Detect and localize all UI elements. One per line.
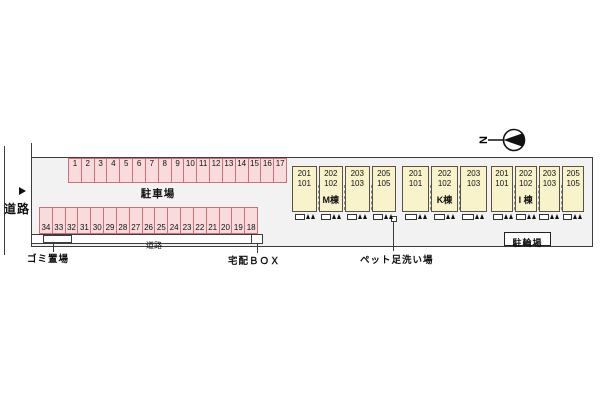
parking-row-bottom: 3433323130292827262524232221201918	[39, 207, 258, 234]
porch-rect	[434, 214, 446, 220]
unit-partition-dashed-line	[371, 185, 372, 210]
unit-numbers: 201101	[492, 169, 512, 188]
entrance-cell	[561, 213, 584, 220]
unit-numbers: 202102	[320, 169, 343, 188]
entrance-step-triangle-icon	[363, 214, 367, 219]
right-arrow-icon	[19, 187, 26, 195]
unit-202: 202102I 棟	[515, 166, 537, 212]
parking-row-top: 1234567891011121314151617	[68, 158, 287, 183]
parking-stall-number: 18	[243, 223, 259, 232]
entrance-step-triangle-icon	[573, 214, 577, 219]
entrance-step-triangle-icon	[578, 214, 582, 219]
entrance-cell	[344, 213, 370, 220]
site-plan-canvas: 道路 1234567891011121314151617 駐車場 3433323…	[0, 0, 600, 400]
porch-rect	[295, 214, 306, 220]
porch-rect	[373, 214, 384, 220]
unit-partition-dashed-line	[459, 185, 460, 210]
entrance-step-triangle-icon	[332, 214, 336, 219]
entrance-step-triangle-icon	[451, 214, 455, 219]
unit-205: 205105	[372, 166, 397, 212]
garbage-area-label: ゴミ置場	[27, 251, 69, 265]
entrance-step-triangle-icon	[475, 214, 479, 219]
building-entrance-strip	[491, 213, 584, 220]
porch-rect	[462, 214, 474, 220]
unit-partition-dashed-line	[514, 185, 515, 210]
porch-rect	[347, 214, 358, 220]
porch-rect	[405, 214, 417, 220]
entrance-step-triangle-icon	[306, 214, 310, 219]
unit-numbers: 203103	[346, 169, 369, 188]
entrance-step-triangle-icon	[311, 214, 315, 219]
entrance-cell	[538, 213, 561, 220]
entrance-step-triangle-icon	[555, 214, 559, 219]
unit-203: 203103	[539, 166, 561, 212]
bicycle-parking-label: 駐輪場	[512, 238, 542, 248]
entrance-cell	[402, 213, 430, 220]
building-K棟: 201101202102K棟203103	[402, 166, 487, 212]
entrance-step-triangle-icon	[480, 214, 484, 219]
boundary-extension-line	[31, 143, 32, 157]
unit-numbers: 203103	[540, 169, 560, 188]
unit-numbers: 202102	[516, 169, 536, 188]
unit-partition-dashed-line	[318, 185, 319, 210]
building-entrance-strip	[402, 213, 487, 220]
entrance-step-triangle-icon	[527, 214, 531, 219]
porch-rect	[321, 214, 332, 220]
unit-numbers: 203103	[461, 169, 486, 188]
parking-lot-label: 駐車場	[118, 186, 198, 201]
entrance-step-triangle-icon	[337, 214, 341, 219]
unit-numbers: 201101	[293, 169, 316, 188]
pet-wash-label: ペット足洗い場	[360, 252, 434, 266]
building-M棟: 201101202102M棟203103205105	[292, 166, 396, 212]
porch-rect	[516, 214, 526, 220]
parking-stall-18: 18	[244, 207, 258, 234]
unit-203: 203103	[460, 166, 487, 212]
parking-stall-17: 17	[273, 158, 287, 183]
unit-partition-dashed-line	[344, 185, 345, 210]
delivery-leader-line	[257, 244, 258, 253]
north-letter: N	[478, 136, 490, 144]
entrance-cell	[491, 213, 514, 220]
parking-stall-number: 17	[272, 159, 288, 168]
garbage-area-box	[43, 235, 72, 243]
unit-numbers: 205105	[373, 169, 396, 188]
entrance-cell	[514, 213, 537, 220]
unit-partition-dashed-line	[430, 185, 431, 210]
entrance-step-triangle-icon	[384, 214, 388, 219]
entrance-step-triangle-icon	[550, 214, 554, 219]
porch-rect	[563, 214, 573, 220]
entrance-step-triangle-icon	[532, 214, 536, 219]
unit-202: 202102M棟	[319, 166, 344, 212]
entrance-cell	[292, 213, 318, 220]
porch-rect	[493, 214, 503, 220]
north-compass-icon: N	[476, 122, 536, 158]
entrance-step-triangle-icon	[504, 214, 508, 219]
unit-partition-dashed-line	[538, 185, 539, 210]
unit-numbers: 205105	[563, 169, 583, 188]
delivery-box-label: 宅配ＢＯＸ	[228, 253, 281, 267]
entrance-step-triangle-icon	[389, 214, 393, 219]
unit-205: 205105	[562, 166, 584, 212]
delivery-box	[251, 234, 263, 244]
entrance-cell	[459, 213, 487, 220]
entrance-step-triangle-icon	[509, 214, 513, 219]
unit-202: 202102K棟	[431, 166, 458, 212]
bicycle-parking-box: 駐輪場	[504, 232, 551, 246]
unit-203: 203103	[345, 166, 370, 212]
entrance-step-triangle-icon	[358, 214, 362, 219]
building-entrance-strip	[292, 213, 396, 220]
entrance-step-triangle-icon	[418, 214, 422, 219]
entrance-step-triangle-icon	[423, 214, 427, 219]
building-I棟: 201101202102I 棟203103205105	[491, 166, 584, 212]
inner-road-label: 道路	[132, 242, 162, 250]
entrance-cell	[318, 213, 344, 220]
entrance-cell	[370, 213, 396, 220]
unit-numbers: 201101	[403, 169, 428, 188]
left-road-label: 道路	[4, 200, 32, 217]
unit-numbers: 202102	[432, 169, 457, 188]
pet-wash-leader-line	[393, 222, 394, 251]
entrance-cell	[430, 213, 458, 220]
porch-rect	[539, 214, 549, 220]
unit-partition-dashed-line	[561, 185, 562, 210]
entrance-step-triangle-icon	[446, 214, 450, 219]
